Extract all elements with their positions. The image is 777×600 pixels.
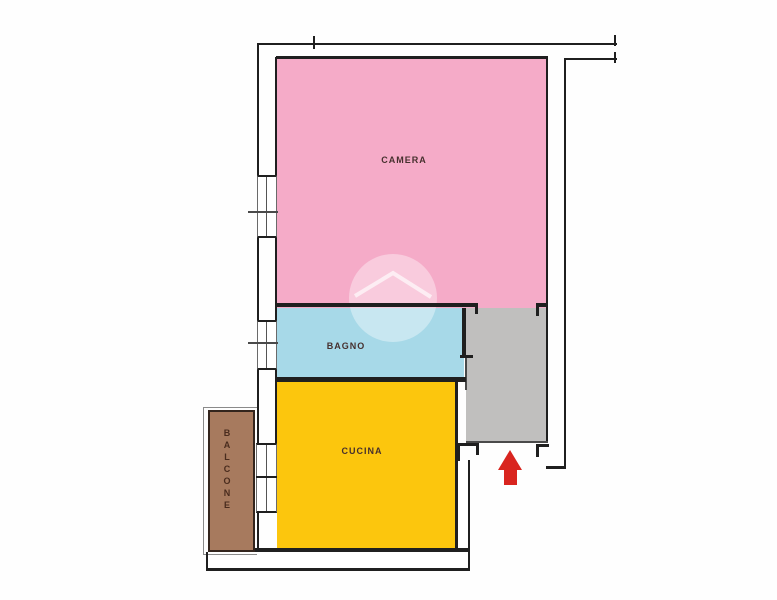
dimension-tick: [248, 342, 278, 344]
window-glass-line: [266, 322, 267, 368]
wall-segment: [455, 382, 458, 549]
balcony-outline: [203, 407, 257, 408]
wall-segment: [257, 43, 617, 45]
door-jamb: [457, 443, 460, 461]
wall-segment: [206, 568, 470, 571]
wall-segment: [206, 552, 208, 570]
window-symbol: [257, 175, 277, 238]
wall-segment: [546, 466, 566, 469]
dimension-tick: [614, 35, 616, 46]
window-symbol: [257, 320, 277, 370]
window-glass-line: [266, 445, 267, 511]
dimension-tick: [313, 36, 315, 49]
door-jamb: [536, 444, 539, 457]
room-label-camera: CAMERA: [369, 155, 439, 165]
door-jamb: [476, 443, 479, 455]
wall-segment: [275, 57, 277, 175]
wall-segment: [468, 460, 470, 570]
wall-segment: [546, 57, 548, 443]
room-cucina: [277, 382, 456, 549]
house-watermark-icon: [340, 245, 450, 355]
room-label-bagno: BAGNO: [316, 341, 376, 351]
dimension-tick: [256, 476, 277, 478]
room-label-cucina: CUCINA: [330, 446, 394, 456]
wall-segment: [276, 56, 548, 59]
floor-plan: CAMERA BAGNO CUCINA BALCONE: [0, 0, 777, 600]
door-jamb: [475, 303, 478, 314]
dimension-tick: [248, 211, 278, 213]
room-ingresso: [466, 308, 548, 443]
arrow-stem: [504, 469, 517, 485]
arrow-head: [498, 450, 522, 470]
wall-segment: [564, 58, 566, 468]
window-glass-line: [266, 177, 267, 236]
wall-segment: [462, 308, 466, 357]
wall-segment: [566, 58, 617, 60]
dimension-tick: [614, 52, 616, 63]
room-label-balcone: BALCONE: [222, 428, 232, 524]
window-symbol: [256, 443, 277, 513]
wall-segment: [255, 548, 468, 552]
wall-segment: [276, 377, 466, 382]
door-jamb: [536, 303, 539, 316]
wall-segment: [276, 303, 478, 307]
wall-segment: [275, 238, 277, 320]
door-leaf: [465, 358, 467, 390]
balcony-outline: [203, 407, 204, 555]
balcony-outline: [203, 554, 257, 555]
